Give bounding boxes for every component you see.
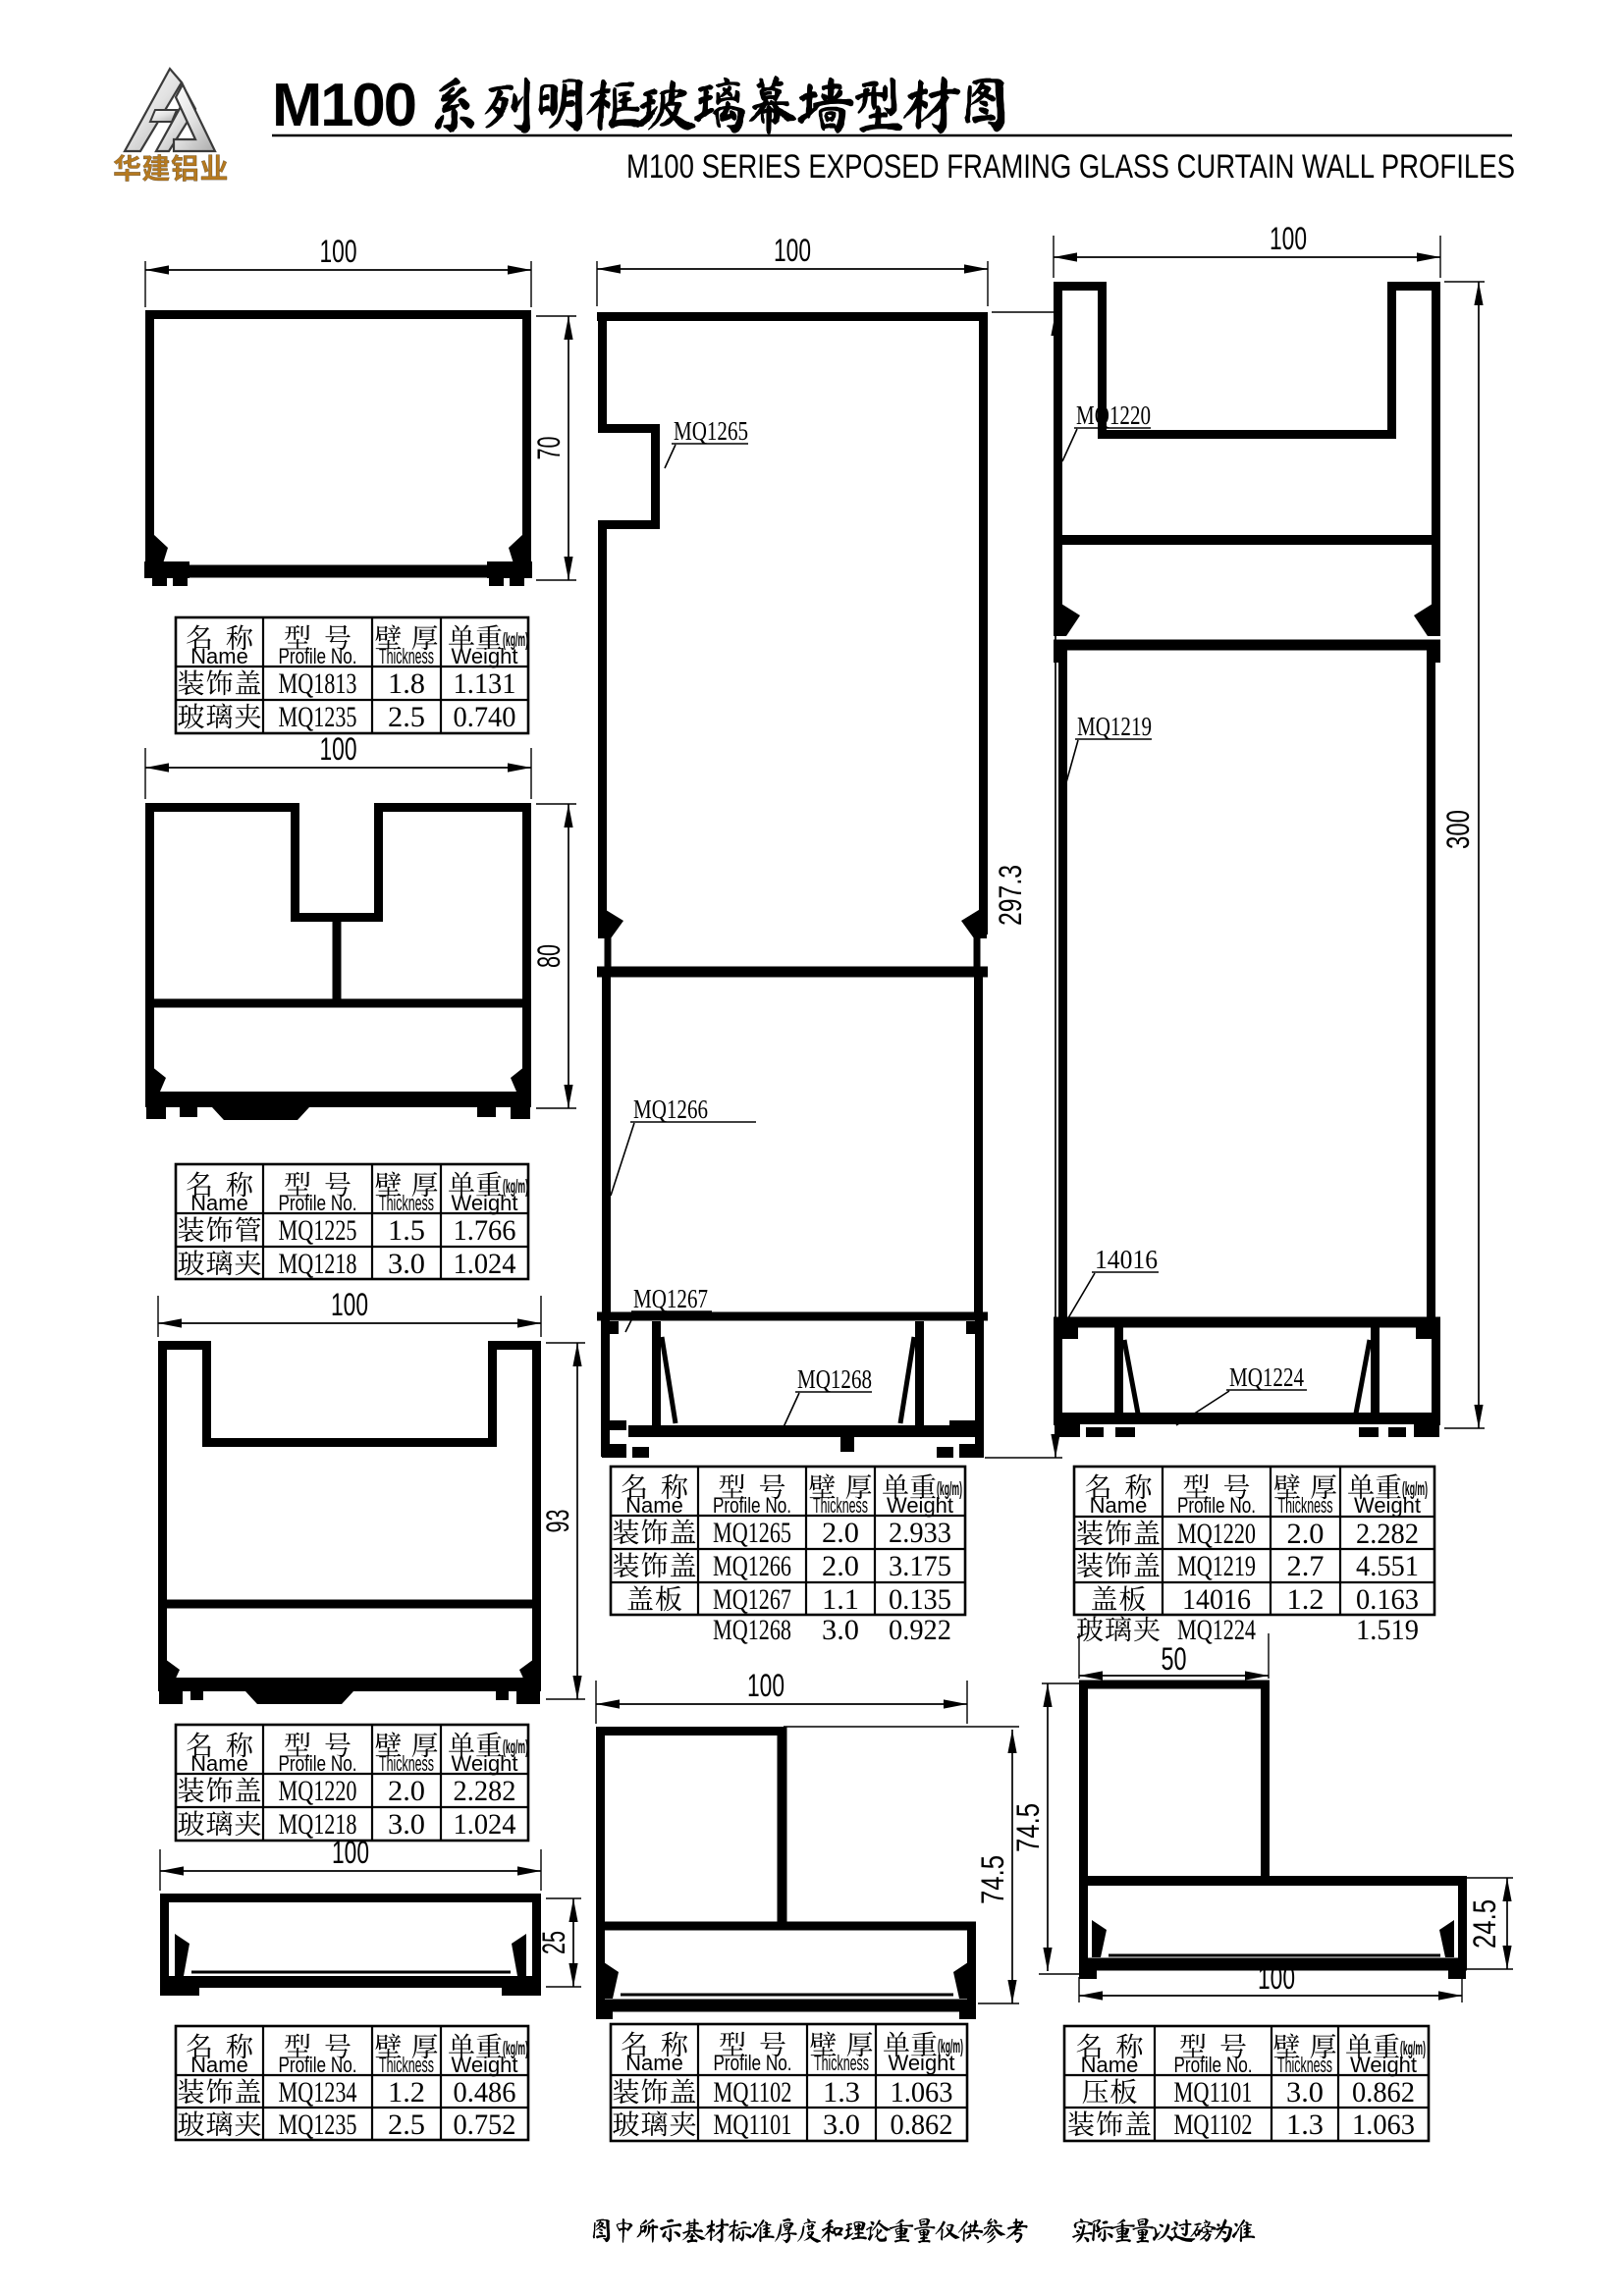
svg-text:0.163: 0.163 <box>1356 1583 1419 1616</box>
svg-text:Profile No.: Profile No. <box>713 1493 791 1518</box>
svg-text:0.486: 0.486 <box>454 2076 516 2109</box>
svg-text:Profile No.: Profile No. <box>279 2053 357 2077</box>
svg-text:1.3: 1.3 <box>1286 2109 1324 2141</box>
svg-text:Weight: Weight <box>887 1493 953 1518</box>
svg-text:Weight: Weight <box>451 1751 517 1776</box>
svg-text:Profile No.: Profile No. <box>279 1751 357 1776</box>
svg-text:100: 100 <box>1258 1960 1295 1996</box>
svg-text:MQ1268: MQ1268 <box>797 1364 872 1394</box>
svg-text:100: 100 <box>774 233 811 268</box>
svg-text:2.933: 2.933 <box>889 1517 951 1549</box>
svg-text:1.519: 1.519 <box>1356 1614 1419 1646</box>
svg-text:1.766: 1.766 <box>454 1214 516 1247</box>
svg-text:Name: Name <box>625 1493 683 1518</box>
svg-text:MQ1235: MQ1235 <box>279 701 357 733</box>
svg-text:100: 100 <box>320 234 357 269</box>
svg-text:2.282: 2.282 <box>454 1775 516 1807</box>
svg-text:1.1: 1.1 <box>822 1583 859 1616</box>
svg-text:MQ1813: MQ1813 <box>279 667 357 700</box>
svg-text:50: 50 <box>1162 1641 1187 1677</box>
svg-text:2.0: 2.0 <box>388 1775 425 1807</box>
svg-text:MQ1266: MQ1266 <box>633 1095 708 1124</box>
svg-text:M100: M100 <box>272 72 415 139</box>
svg-text:2.5: 2.5 <box>388 701 425 733</box>
svg-text:Thickness: Thickness <box>379 2053 434 2077</box>
svg-text:3.0: 3.0 <box>1286 2076 1324 2109</box>
svg-text:MQ1266: MQ1266 <box>713 1550 791 1582</box>
svg-text:2.5: 2.5 <box>388 2109 425 2141</box>
svg-text:74.5: 74.5 <box>975 1855 1010 1904</box>
svg-text:0.862: 0.862 <box>891 2109 953 2141</box>
svg-text:80: 80 <box>531 944 567 968</box>
svg-text:3.0: 3.0 <box>388 1248 425 1280</box>
svg-text:MQ1267: MQ1267 <box>633 1284 708 1313</box>
svg-text:1.024: 1.024 <box>454 1248 516 1280</box>
svg-text:Name: Name <box>190 2053 248 2077</box>
svg-text:3.0: 3.0 <box>388 1808 425 1841</box>
svg-text:MQ1101: MQ1101 <box>714 2109 792 2141</box>
svg-text:2.0: 2.0 <box>822 1517 859 1549</box>
svg-text:Weight: Weight <box>1354 1493 1421 1518</box>
svg-text:MQ1220: MQ1220 <box>279 1775 357 1807</box>
svg-text:4.551: 4.551 <box>1356 1550 1419 1582</box>
svg-text:3.0: 3.0 <box>822 1614 859 1646</box>
svg-text:1.3: 1.3 <box>823 2076 860 2109</box>
svg-text:Profile No.: Profile No. <box>1174 2053 1253 2077</box>
svg-text:0.135: 0.135 <box>889 1583 951 1616</box>
svg-text:Weight: Weight <box>1350 2053 1417 2077</box>
svg-text:Name: Name <box>190 644 248 668</box>
svg-text:1.8: 1.8 <box>388 667 425 700</box>
svg-text:MQ1234: MQ1234 <box>279 2076 357 2109</box>
svg-text:1.024: 1.024 <box>454 1808 516 1841</box>
svg-text:0.740: 0.740 <box>454 701 516 733</box>
svg-text:297.3: 297.3 <box>993 865 1028 926</box>
svg-text:Profile No.: Profile No. <box>279 1191 357 1215</box>
svg-text:Profile No.: Profile No. <box>1177 1493 1256 1518</box>
svg-text:Weight: Weight <box>451 2053 517 2077</box>
svg-text:100: 100 <box>1270 221 1307 256</box>
svg-text:100: 100 <box>331 1287 368 1322</box>
svg-text:Name: Name <box>190 1751 248 1776</box>
svg-text:Thickness: Thickness <box>813 1493 868 1518</box>
svg-text:0.752: 0.752 <box>454 2109 516 2141</box>
svg-text:MQ1224: MQ1224 <box>1229 1362 1304 1392</box>
svg-text:Weight: Weight <box>451 644 517 668</box>
svg-text:70: 70 <box>531 437 567 460</box>
svg-text:Thickness: Thickness <box>1277 2053 1332 2077</box>
svg-text:93: 93 <box>540 1510 575 1533</box>
svg-text:MQ1224: MQ1224 <box>1177 1614 1256 1646</box>
svg-text:Thickness: Thickness <box>1278 1493 1333 1518</box>
svg-text:0.922: 0.922 <box>889 1614 951 1646</box>
svg-text:MQ1265: MQ1265 <box>674 416 748 446</box>
svg-text:Thickness: Thickness <box>379 644 434 668</box>
svg-text:MQ1101: MQ1101 <box>1174 2076 1253 2109</box>
svg-text:Weight: Weight <box>888 2051 954 2075</box>
svg-text:Profile No.: Profile No. <box>279 644 357 668</box>
svg-text:MQ1218: MQ1218 <box>279 1248 357 1280</box>
svg-text:Name: Name <box>625 2051 683 2075</box>
svg-text:MQ1225: MQ1225 <box>279 1214 357 1247</box>
svg-text:Name: Name <box>190 1191 248 1215</box>
svg-text:2.0: 2.0 <box>822 1550 859 1582</box>
svg-text:2.7: 2.7 <box>1287 1550 1325 1582</box>
svg-text:14016: 14016 <box>1095 1245 1158 1274</box>
svg-text:MQ1265: MQ1265 <box>713 1517 791 1549</box>
svg-text:1.131: 1.131 <box>454 667 516 700</box>
svg-text:2.282: 2.282 <box>1356 1518 1419 1550</box>
svg-text:1.2: 1.2 <box>388 2076 425 2109</box>
svg-text:MQ1219: MQ1219 <box>1077 712 1152 741</box>
svg-text:100: 100 <box>320 731 357 767</box>
svg-text:3.175: 3.175 <box>889 1550 951 1582</box>
svg-text:24.5: 24.5 <box>1467 1899 1502 1949</box>
svg-text:MQ1268: MQ1268 <box>713 1614 791 1646</box>
svg-text:2.0: 2.0 <box>1287 1518 1325 1550</box>
svg-text:Weight: Weight <box>451 1191 517 1215</box>
svg-text:14016: 14016 <box>1182 1583 1251 1616</box>
svg-text:MQ1219: MQ1219 <box>1177 1550 1256 1582</box>
svg-text:1.063: 1.063 <box>891 2076 953 2109</box>
svg-text:1.063: 1.063 <box>1352 2109 1415 2141</box>
svg-text:74.5: 74.5 <box>1010 1803 1046 1852</box>
svg-text:MQ1267: MQ1267 <box>713 1583 791 1616</box>
svg-text:1.2: 1.2 <box>1287 1583 1325 1616</box>
svg-text:MQ1220: MQ1220 <box>1177 1518 1256 1550</box>
svg-text:0.862: 0.862 <box>1352 2076 1415 2109</box>
svg-text:MQ1102: MQ1102 <box>714 2076 792 2109</box>
svg-text:MQ1220: MQ1220 <box>1076 400 1151 430</box>
svg-text:100: 100 <box>332 1835 369 1870</box>
svg-text:MQ1102: MQ1102 <box>1174 2109 1253 2141</box>
svg-text:MQ1235: MQ1235 <box>279 2109 357 2141</box>
svg-text:25: 25 <box>536 1931 571 1954</box>
svg-text:100: 100 <box>747 1668 784 1703</box>
svg-text:Name: Name <box>1090 1493 1148 1518</box>
svg-text:300: 300 <box>1440 810 1476 849</box>
svg-text:Profile No.: Profile No. <box>714 2051 792 2075</box>
svg-text:Name: Name <box>1081 2053 1139 2077</box>
svg-text:1.5: 1.5 <box>388 1214 425 1247</box>
svg-text:3.0: 3.0 <box>823 2109 860 2141</box>
svg-text:Thickness: Thickness <box>379 1751 434 1776</box>
svg-text:Thickness: Thickness <box>814 2051 869 2075</box>
svg-text:Thickness: Thickness <box>379 1191 434 1215</box>
svg-text:M100 SERIES EXPOSED FRAMING G: M100 SERIES EXPOSED FRAMING GLASS CURTAI… <box>626 148 1515 186</box>
